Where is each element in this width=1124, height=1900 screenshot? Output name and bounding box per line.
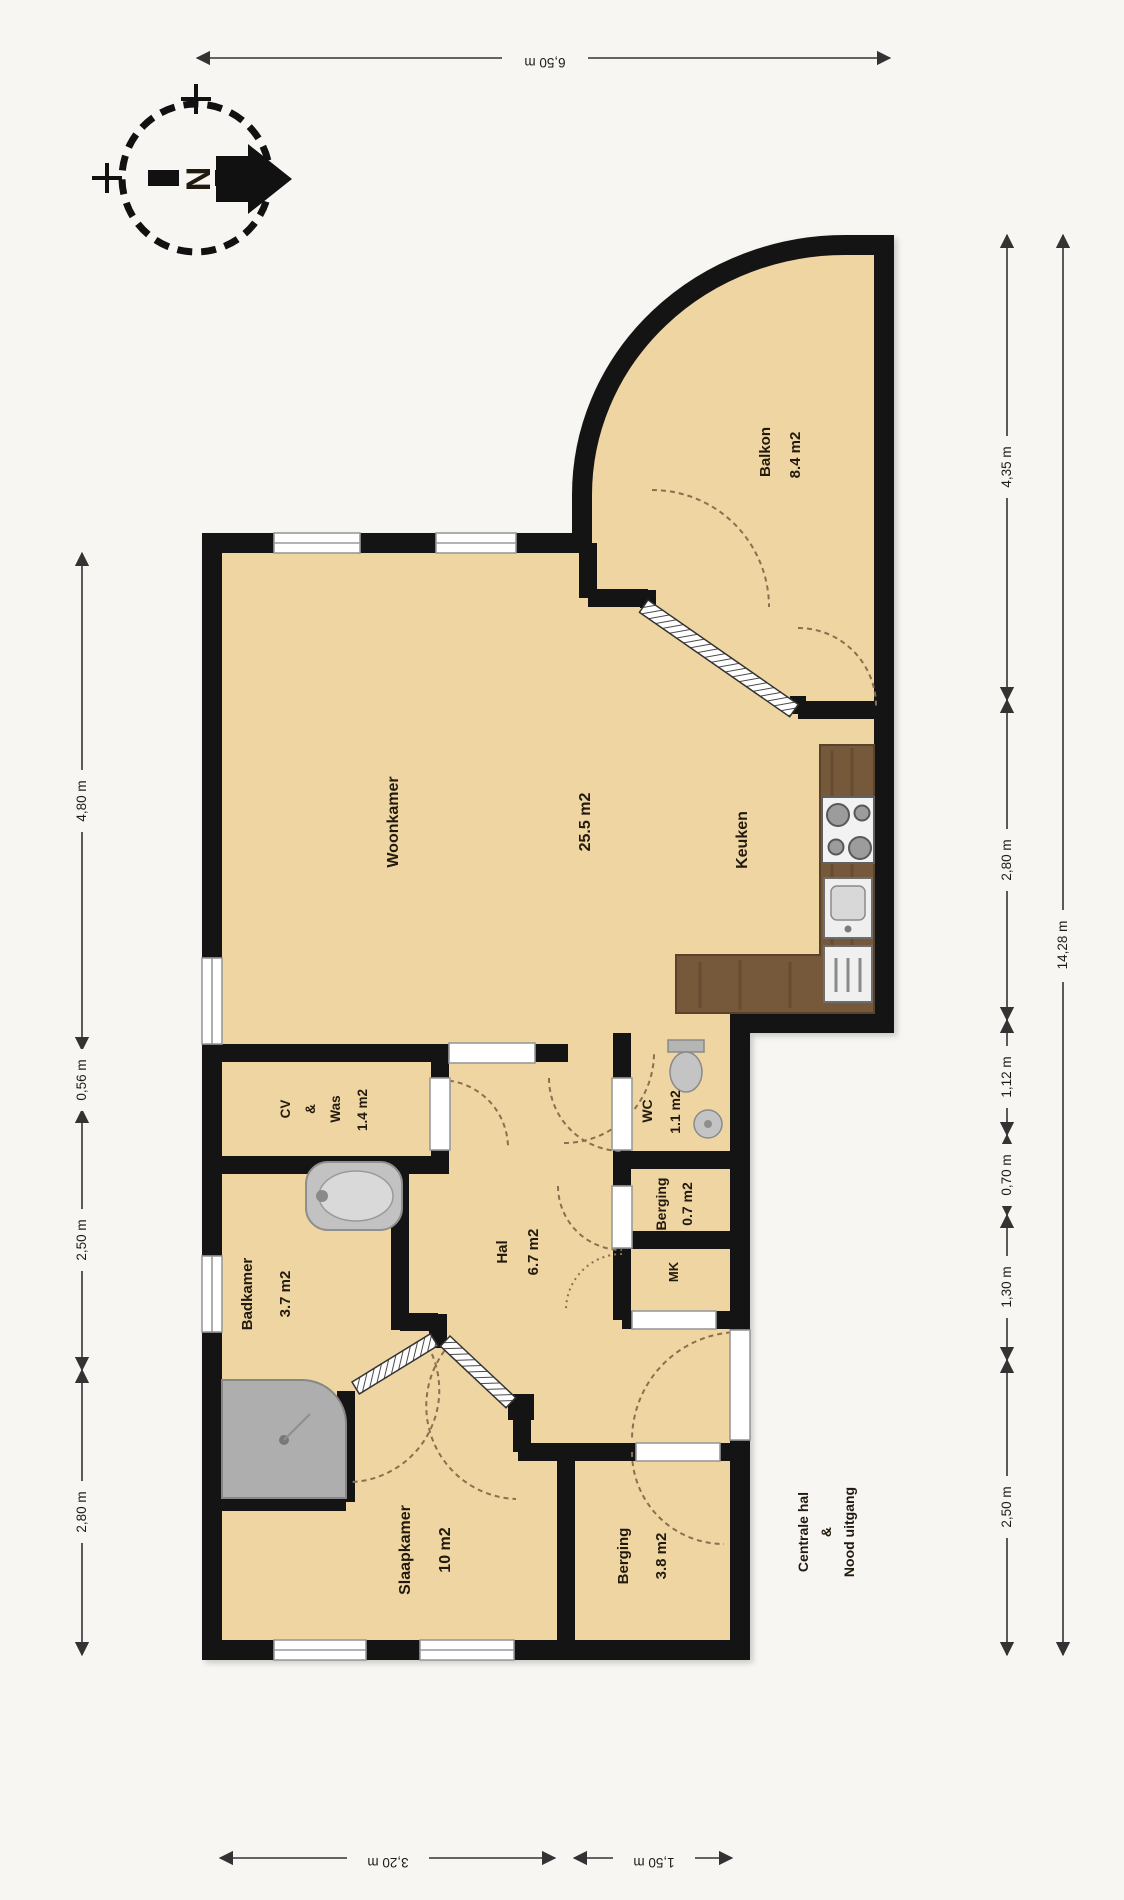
dim-right-1: 2,80 m — [999, 839, 1014, 880]
window — [436, 533, 516, 553]
outside-label-line2: & — [818, 1527, 834, 1537]
sink-icon — [824, 878, 872, 938]
bathtub-icon — [306, 1162, 402, 1230]
dim-bottom-right: 1,50 m — [633, 1855, 674, 1870]
room-label-slaapkamer: Slaapkamer — [397, 1505, 414, 1595]
door-frame — [632, 1311, 716, 1329]
room-label-was: Was — [328, 1095, 343, 1122]
compass-north-label: N — [180, 167, 218, 192]
room-label-mk: MK — [666, 1261, 681, 1282]
dim-right-2: 1,12 m — [999, 1056, 1014, 1097]
outside-label-line1: Centrale hal — [795, 1492, 811, 1572]
room-label-wc: WC — [639, 1099, 655, 1122]
room-label-balkon: Balkon — [757, 427, 774, 477]
dim-bottom-left: 3,20 m — [367, 1855, 408, 1870]
dim-right-total: 14,28 m — [1055, 921, 1070, 970]
shower-icon — [222, 1380, 346, 1498]
door-frame — [449, 1043, 535, 1063]
room-area-cvwas: 1.4 m2 — [355, 1089, 370, 1131]
dim-right-3: 0,70 m — [999, 1154, 1014, 1195]
dim-left-3: 2,80 m — [74, 1491, 89, 1532]
outside-label-line3: Nood uitgang — [841, 1487, 857, 1577]
window — [202, 1256, 222, 1332]
dim-right-4: 1,30 m — [999, 1266, 1014, 1307]
window — [274, 1640, 366, 1660]
compass-needle-icon — [148, 144, 292, 214]
washbasin-icon — [694, 1110, 722, 1138]
room-area-berging-groot: 3.8 m2 — [653, 1533, 670, 1580]
room-area-berging-klein: 0.7 m2 — [679, 1182, 695, 1226]
room-area-hal: 6.7 m2 — [525, 1229, 542, 1276]
stove-icon — [822, 797, 874, 863]
room-label-cv: CV — [278, 1100, 293, 1119]
room-label-keuken: Keuken — [734, 811, 751, 869]
room-area-slaapkamer: 10 m2 — [437, 1527, 454, 1572]
dim-right-5: 2,50 m — [999, 1486, 1014, 1527]
dim-right-0: 4,35 m — [999, 446, 1014, 487]
window — [202, 958, 222, 1044]
outside-label: Centrale hal & Nood uitgang — [795, 1487, 857, 1577]
room-area-badkamer: 3.7 m2 — [277, 1271, 294, 1318]
room-label-hal: Hal — [494, 1240, 511, 1263]
room-label-woonkamer: Woonkamer — [385, 776, 402, 867]
door-frame — [612, 1078, 632, 1150]
room-area-woonkamer: 25.5 m2 — [577, 793, 594, 852]
door-frame — [612, 1186, 632, 1248]
door-frame — [430, 1078, 450, 1150]
room-area-wc: 1.1 m2 — [667, 1090, 683, 1134]
window — [274, 533, 360, 553]
room-label-badkamer: Badkamer — [239, 1258, 256, 1331]
door-frame — [636, 1443, 720, 1461]
compass-tick-west — [92, 163, 122, 193]
dim-left-2: 2,50 m — [74, 1219, 89, 1260]
dim-left-1: 0,56 m — [74, 1059, 89, 1100]
floorplan-canvas: N — [0, 0, 1124, 1900]
floorplan-page: N — [0, 0, 1124, 1900]
compass-rose: N — [92, 84, 292, 252]
window — [420, 1640, 514, 1660]
dim-left-0: 4,80 m — [74, 780, 89, 821]
dishwasher-icon — [824, 946, 872, 1002]
room-label-cv-amp: & — [303, 1104, 318, 1114]
room-label-berging-klein: Berging — [653, 1178, 669, 1231]
entrance-door-frame — [730, 1330, 750, 1440]
toilet-icon — [668, 1040, 704, 1092]
dim-top: 6,50 m — [524, 55, 565, 70]
room-label-berging-groot: Berging — [615, 1528, 632, 1585]
compass-tick-north — [181, 84, 211, 114]
room-area-balkon: 8.4 m2 — [787, 432, 804, 479]
